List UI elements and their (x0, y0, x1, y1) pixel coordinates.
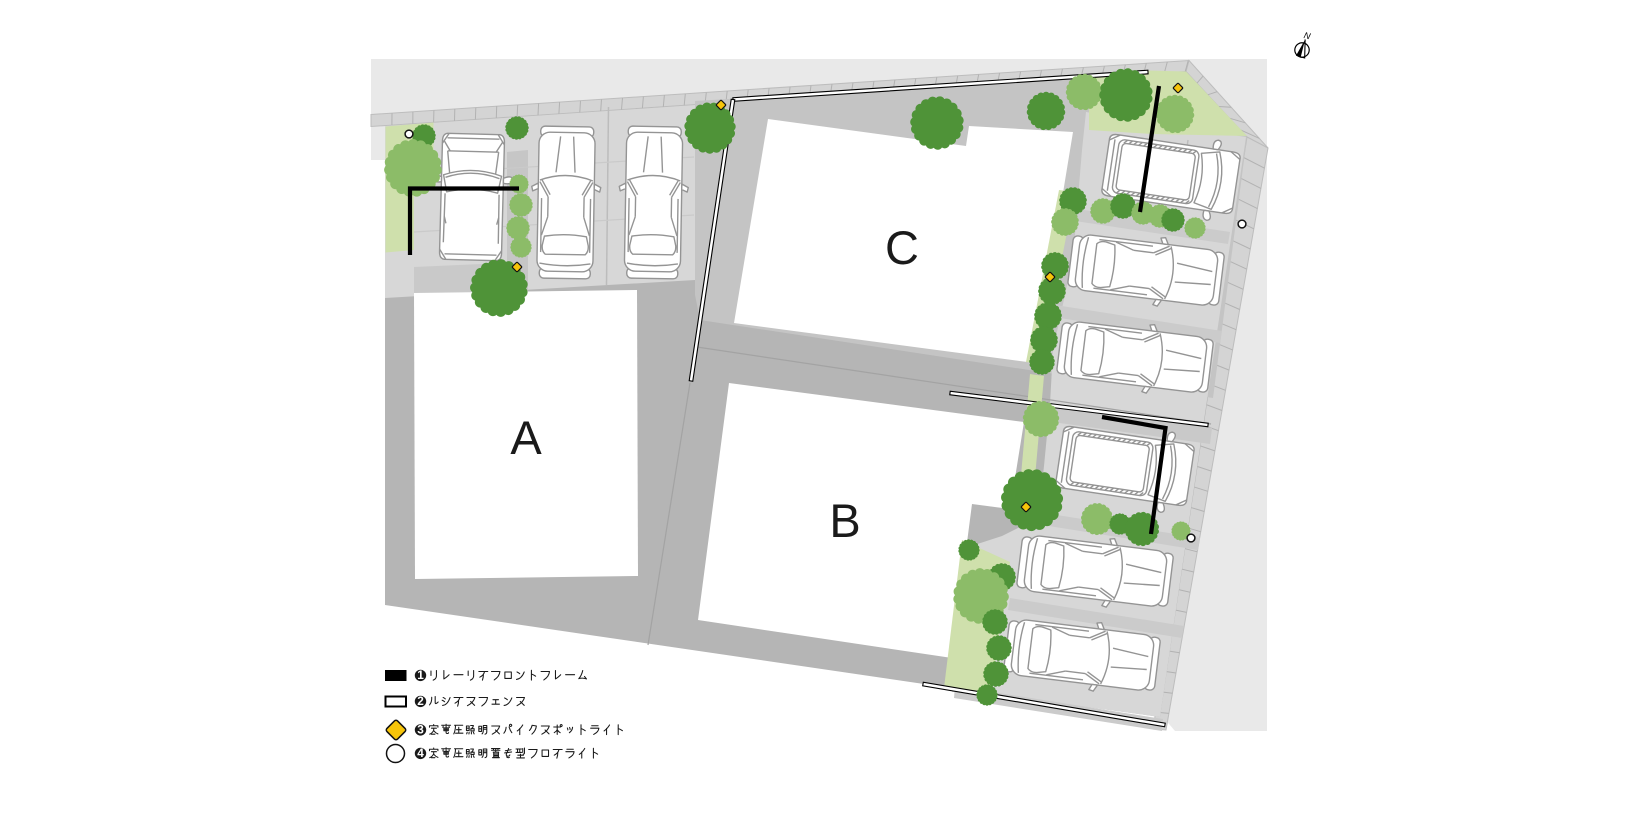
svg-text:B: B (829, 494, 860, 547)
svg-text:4: 4 (417, 746, 424, 760)
svg-text:3: 3 (417, 723, 424, 737)
svg-text:N: N (1303, 30, 1312, 41)
svg-text:2: 2 (417, 694, 424, 708)
svg-text:A: A (510, 411, 542, 464)
svg-text:C: C (885, 221, 919, 274)
svg-text:1: 1 (417, 668, 424, 682)
